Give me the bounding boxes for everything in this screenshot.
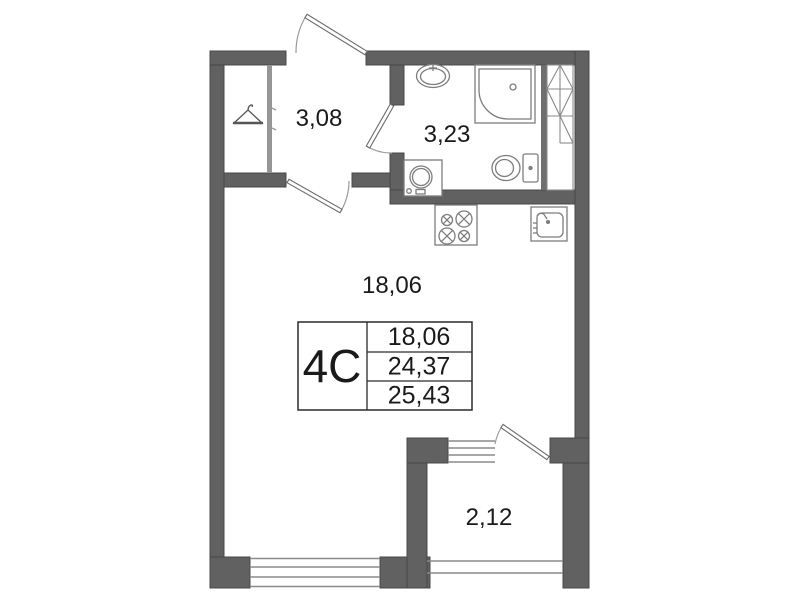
bathroom-area-label: 3,23 xyxy=(424,121,471,148)
wall-balcony-right-pier xyxy=(550,438,589,463)
hanger-icon xyxy=(233,105,263,123)
living-room-door xyxy=(287,179,349,212)
balcony-area-label: 2,12 xyxy=(466,504,513,531)
wall-right xyxy=(575,51,589,438)
apartment-area-value: 24,37 xyxy=(388,353,451,381)
bathroom-door xyxy=(366,104,393,153)
washing-machine-icon xyxy=(404,160,442,196)
living-area-value: 18,06 xyxy=(388,323,451,351)
unit-type-label: 4С xyxy=(303,340,362,392)
entrance-door xyxy=(296,14,367,54)
wall-top-left xyxy=(210,51,286,65)
wall-shaft-left xyxy=(541,65,547,190)
total-area-value: 25,43 xyxy=(388,382,451,410)
window-living-room xyxy=(250,559,380,587)
living-room-area-label: 18,06 xyxy=(362,272,422,299)
unit-info-table: 4С 18,06 24,37 25,43 xyxy=(298,322,472,410)
wall-top-right xyxy=(366,51,589,65)
wall-hall-bottom-left xyxy=(224,173,286,187)
floor-plan-drawing: 3,08 3,23 18,06 2,12 4С 18,06 24,37 25,4… xyxy=(0,0,799,600)
shower-cabin-icon xyxy=(475,65,535,123)
ventilation-shaft-icon xyxy=(547,65,573,190)
floor-plan: 3,08 3,23 18,06 2,12 4С 18,06 24,37 25,4… xyxy=(0,0,799,600)
toilet-icon xyxy=(492,154,538,182)
hall-area-label: 3,08 xyxy=(296,105,343,132)
closet-partition xyxy=(267,65,276,173)
outer-walls xyxy=(210,51,589,588)
wall-balcony-left-flange xyxy=(407,438,448,463)
kitchen-sink-icon xyxy=(531,207,567,241)
balcony-railing xyxy=(427,561,563,573)
wall-left xyxy=(210,51,224,588)
balcony-door xyxy=(495,424,549,459)
wall-balcony-right xyxy=(563,463,589,588)
wall-bottom-left-pier xyxy=(210,557,250,588)
wall-bath-left-top xyxy=(390,65,404,105)
window-balcony-top xyxy=(448,441,495,462)
washbasin-icon xyxy=(417,65,450,88)
stove-icon xyxy=(435,205,477,245)
